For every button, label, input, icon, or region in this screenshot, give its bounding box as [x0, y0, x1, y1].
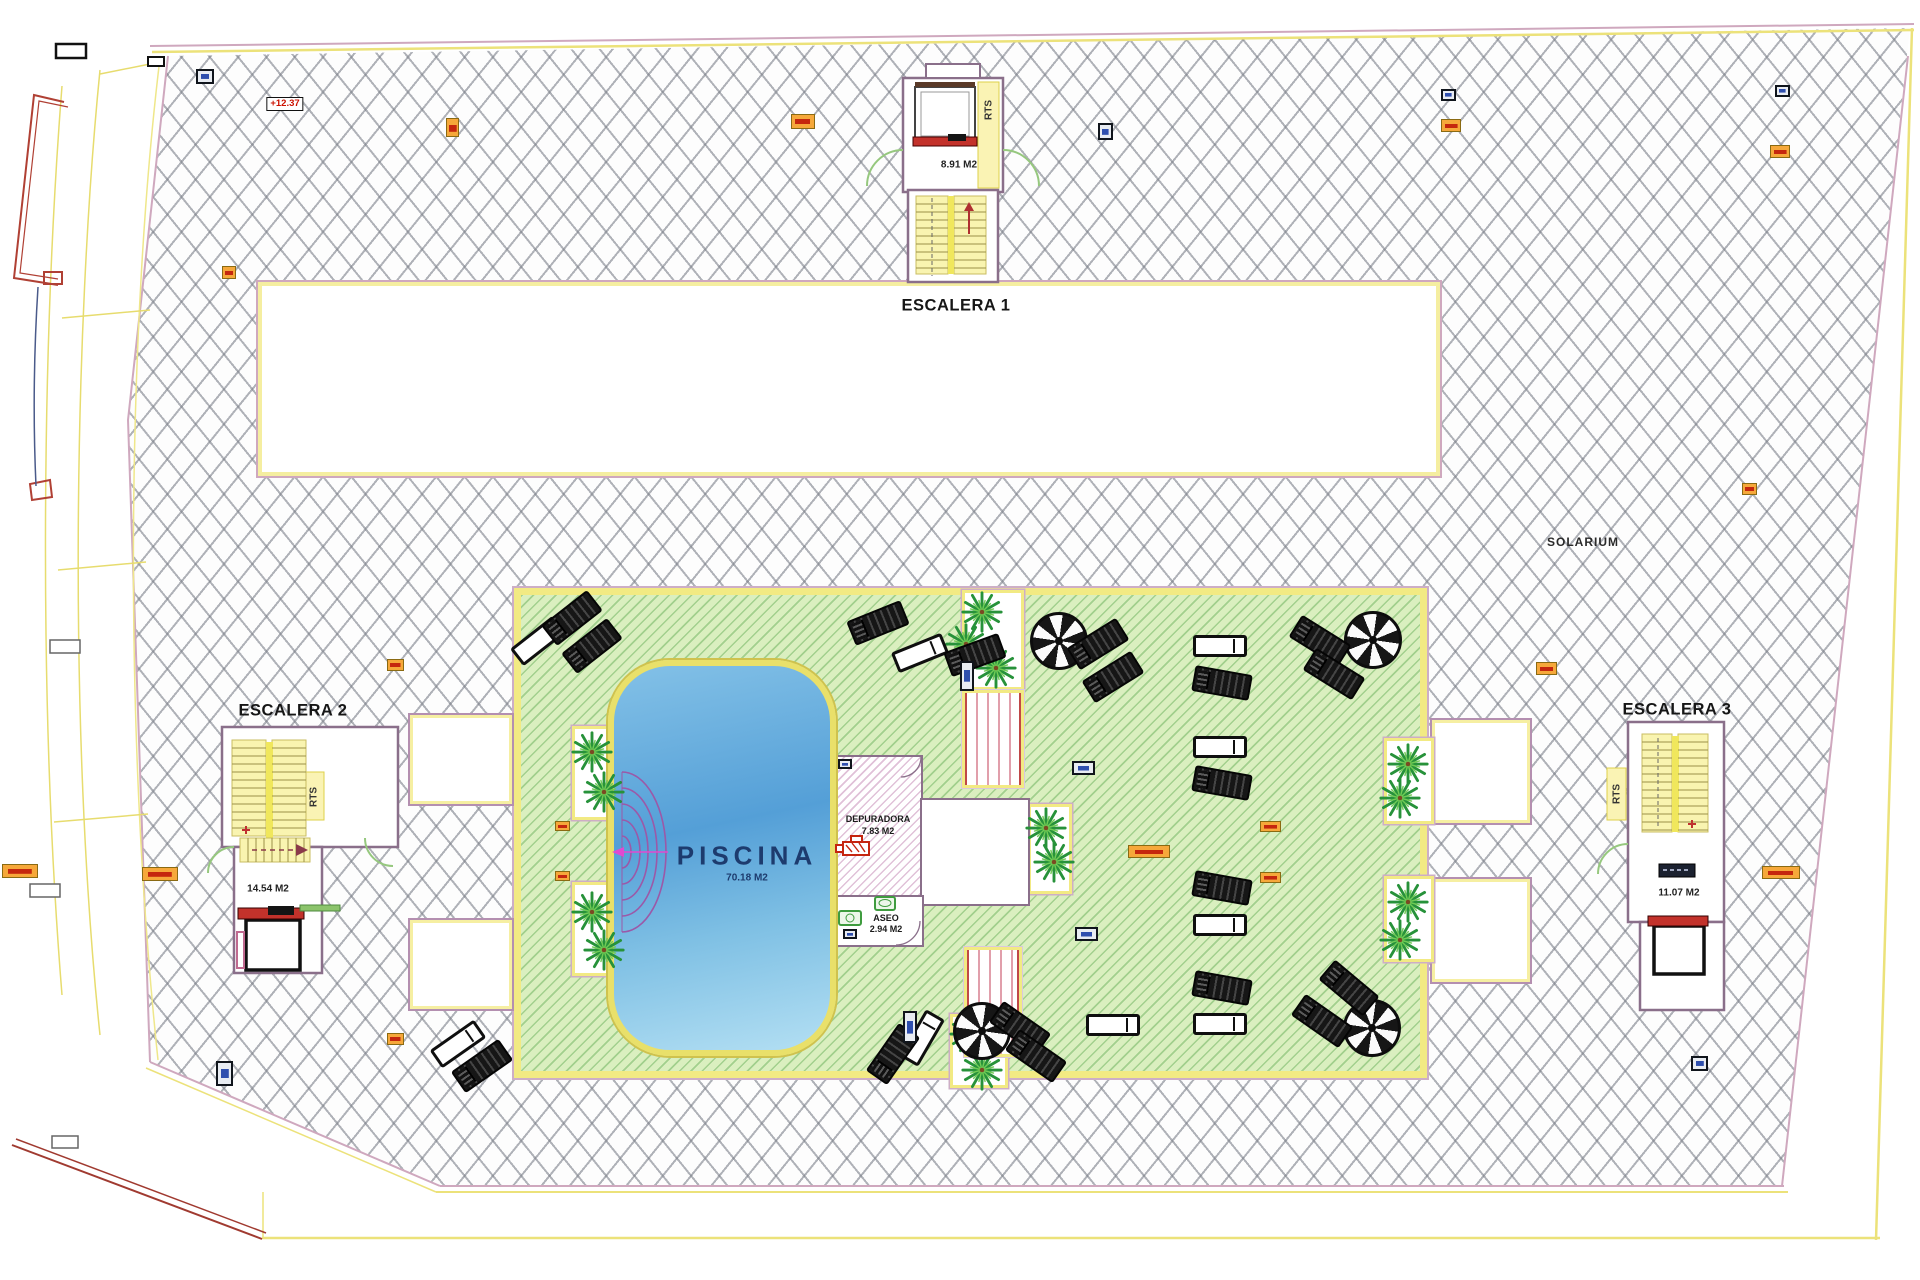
pool-area-label: 70.18 M2 [726, 873, 768, 884]
stair2-area-label: 14.54 M2 [247, 884, 289, 895]
level-marker [142, 867, 178, 881]
level-marker [1770, 145, 1790, 158]
solarium-label: SOLARIUM [1547, 535, 1619, 549]
level-marker [960, 661, 974, 691]
level-marker [196, 69, 214, 84]
level-marker [387, 659, 404, 671]
level-marker [1098, 123, 1113, 140]
stair3-area-label: 11.07 M2 [1658, 888, 1699, 899]
rts-shaft-label: RTS [309, 787, 320, 807]
stairwell-1-label: ESCALERA 1 [902, 297, 1011, 316]
level-marker [387, 1033, 404, 1045]
palm-icon [1377, 917, 1423, 963]
deck-steps [962, 690, 1024, 788]
floor-plan-canvas: ESCALERA 1 ESCALERA 2 ESCALERA 3 SOLARIU… [0, 0, 1920, 1280]
sun-lounger-icon [1193, 736, 1247, 758]
level-marker [216, 1061, 233, 1086]
sun-lounger-icon [1193, 1013, 1247, 1035]
planter-box [1430, 718, 1532, 825]
stairwell-2-label: ESCALERA 2 [239, 702, 348, 721]
palm-icon [581, 769, 627, 815]
level-marker [1742, 483, 1757, 495]
rts-shaft-label: RTS [984, 100, 995, 120]
level-marker [903, 1011, 917, 1043]
depuradora-label: DEPURADORA [846, 814, 911, 824]
planter-box [408, 713, 514, 806]
level-marker [1775, 85, 1790, 97]
level-marker [2, 864, 38, 878]
level-marker [1260, 821, 1281, 832]
level-marker [1075, 927, 1098, 941]
sun-lounger-icon [1193, 635, 1247, 657]
level-marker [1441, 119, 1461, 132]
level-marker [1762, 866, 1800, 879]
level-marker [1441, 89, 1456, 101]
level-marker [1260, 872, 1281, 883]
sun-lounger-icon [1193, 914, 1247, 936]
sun-lounger-icon [1086, 1014, 1140, 1036]
aseo-area-label: 2.94 M2 [870, 924, 903, 934]
palm-icon [581, 927, 627, 973]
level-marker [222, 266, 236, 279]
elevation-badge: +12.37 [266, 97, 303, 111]
palm-icon [1031, 839, 1077, 885]
level-marker [555, 871, 570, 881]
stair1-area-label: 8.91 M2 [941, 160, 977, 171]
depuradora-area-label: 7.83 M2 [862, 826, 895, 836]
level-marker [1128, 845, 1170, 858]
parasol-icon [1344, 611, 1402, 669]
level-marker [1536, 662, 1557, 675]
planter-box [408, 918, 514, 1011]
level-marker [838, 759, 852, 769]
pool-label: PISCINA [677, 841, 817, 872]
stairwell-3-label: ESCALERA 3 [1623, 701, 1732, 720]
aseo-label: ASEO [873, 913, 899, 923]
level-marker [843, 929, 857, 939]
level-marker [791, 114, 815, 129]
level-marker [446, 118, 459, 137]
planter-box [1430, 877, 1532, 984]
service-room [920, 798, 1030, 906]
level-marker [1072, 761, 1095, 775]
palm-icon [1377, 775, 1423, 821]
roof-opening [256, 280, 1442, 478]
rts-shaft-label: RTS [1612, 784, 1623, 804]
level-marker [1691, 1056, 1708, 1071]
level-marker [555, 821, 570, 831]
